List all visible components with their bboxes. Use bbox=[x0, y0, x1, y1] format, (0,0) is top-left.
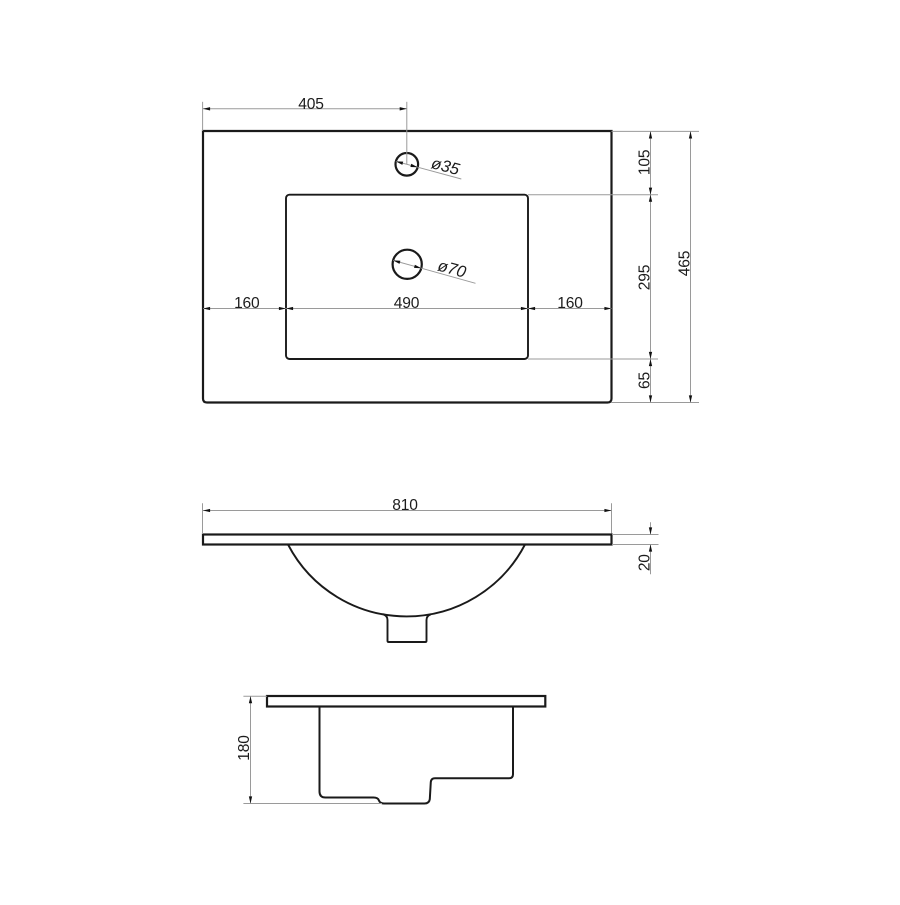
svg-text:160: 160 bbox=[557, 295, 583, 312]
svg-text:ø35: ø35 bbox=[429, 154, 462, 179]
svg-text:295: 295 bbox=[636, 264, 653, 290]
svg-text:105: 105 bbox=[636, 149, 653, 175]
svg-text:490: 490 bbox=[394, 295, 420, 312]
svg-text:ø70: ø70 bbox=[436, 257, 469, 282]
svg-text:160: 160 bbox=[234, 295, 260, 312]
svg-text:65: 65 bbox=[636, 372, 653, 389]
svg-text:810: 810 bbox=[392, 497, 418, 514]
svg-text:20: 20 bbox=[637, 554, 654, 571]
svg-text:465: 465 bbox=[677, 250, 694, 276]
svg-text:180: 180 bbox=[236, 735, 253, 761]
svg-text:405: 405 bbox=[298, 96, 324, 113]
